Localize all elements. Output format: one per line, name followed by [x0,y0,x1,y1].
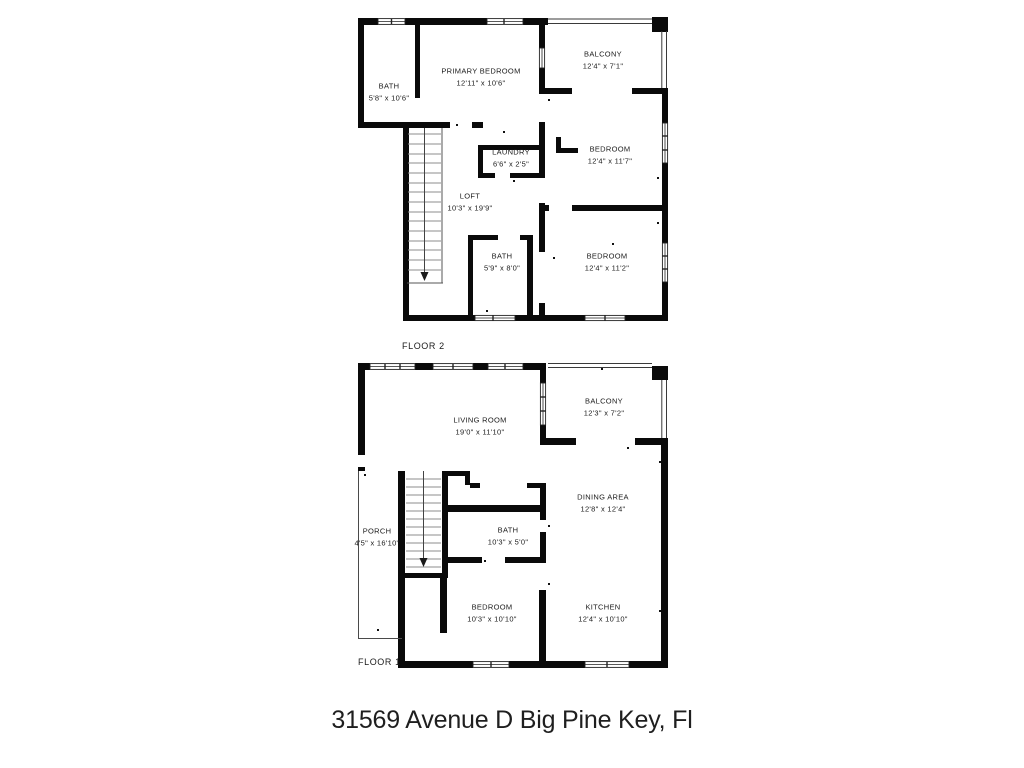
window [378,19,405,25]
room-dims: 5'8" x 10'6" [369,92,410,104]
room-name: KITCHEN [578,601,628,613]
window [475,315,515,320]
room-label-f2-balcony: BALCONY 12'4" x 7'1" [583,48,624,71]
room-label-f2-bedroom-lower: BEDROOM 12'4" x 11'2" [585,250,629,273]
room-name: BEDROOM [585,250,629,262]
window [488,364,523,370]
room-dims: 10'3" x 10'10" [467,613,517,625]
room-name: BATH [484,250,520,262]
floor1-corner-column [652,366,668,380]
window [540,383,545,425]
room-label-f2-loft: LOFT 10'3" x 19'9" [447,190,492,213]
stair-direction-arrow [420,558,428,567]
room-label-f1-dining-area: DINING AREA 12'8" x 12'4" [577,491,629,514]
floor1-label: FLOOR 1 [358,657,401,667]
room-dims: 12'4" x 11'7" [588,155,632,167]
room-dims: 12'4" x 10'10" [578,613,628,625]
room-label-f1-porch: PORCH 4'5" x 16'10" [354,525,399,548]
floor1-porch-outline [358,471,402,639]
room-name: BALCONY [584,395,625,407]
room-label-f2-bedroom-upper: BEDROOM 12'4" x 11'7" [588,143,632,166]
stair-direction-arrow [421,272,429,281]
room-label-f1-living-room: LIVING ROOM 19'0" x 11'10" [453,414,506,437]
window [370,364,415,370]
room-label-f2-bath: BATH 5'8" x 10'6" [369,80,410,103]
room-name: LOFT [447,190,492,202]
room-name: LIVING ROOM [453,414,506,426]
address-title: 31569 Avenue D Big Pine Key, Fl [0,706,1024,735]
room-dims: 12'3" x 7'2" [584,407,625,419]
floor2-stairs [407,128,443,283]
room-label-f1-bath: BATH 10'3" x 5'0" [488,524,529,547]
room-name: PORCH [354,525,399,537]
room-dims: 10'3" x 19'9" [447,202,492,214]
floor1-stairs [406,471,441,567]
room-dims: 12'4" x 11'2" [585,262,629,274]
window [585,315,625,320]
room-dims: 5'9" x 8'0" [484,262,520,274]
room-dims: 4'5" x 16'10" [354,537,399,549]
room-name: DINING AREA [577,491,629,503]
window [539,48,544,68]
room-dims: 12'11" x 10'6" [441,77,520,89]
window [487,19,523,25]
room-name: BEDROOM [588,143,632,155]
window [433,364,473,370]
room-name: PRIMARY BEDROOM [441,65,520,77]
floor2-label: FLOOR 2 [402,341,445,351]
room-label-f2-bath-lower: BATH 5'9" x 8'0" [484,250,520,273]
floorplan-drawing [0,0,1024,768]
window [473,662,509,668]
room-label-f2-laundry: LAUNDRY 6'6" x 2'5" [492,146,530,169]
room-label-f1-bedroom: BEDROOM 10'3" x 10'10" [467,601,517,624]
room-label-f2-primary-bedroom: PRIMARY BEDROOM 12'11" x 10'6" [441,65,520,88]
floor2-corner-column [652,17,668,32]
room-name: BATH [488,524,529,536]
room-dims: 19'0" x 11'10" [453,426,506,438]
room-name: BATH [369,80,410,92]
room-dims: 12'4" x 7'1" [583,60,624,72]
room-name: BEDROOM [467,601,517,613]
floorplan-page: { "title": "31569 Avenue D Big Pine Key,… [0,0,1024,768]
window [585,662,629,668]
room-label-f1-kitchen: KITCHEN 12'4" x 10'10" [578,601,628,624]
room-dims: 10'3" x 5'0" [488,536,529,548]
room-dims: 12'8" x 12'4" [577,503,629,515]
window [662,123,667,163]
room-label-f1-balcony: BALCONY 12'3" x 7'2" [584,395,625,418]
room-name: LAUNDRY [492,146,530,158]
window [662,243,667,282]
room-dims: 6'6" x 2'5" [492,158,530,170]
room-name: BALCONY [583,48,624,60]
